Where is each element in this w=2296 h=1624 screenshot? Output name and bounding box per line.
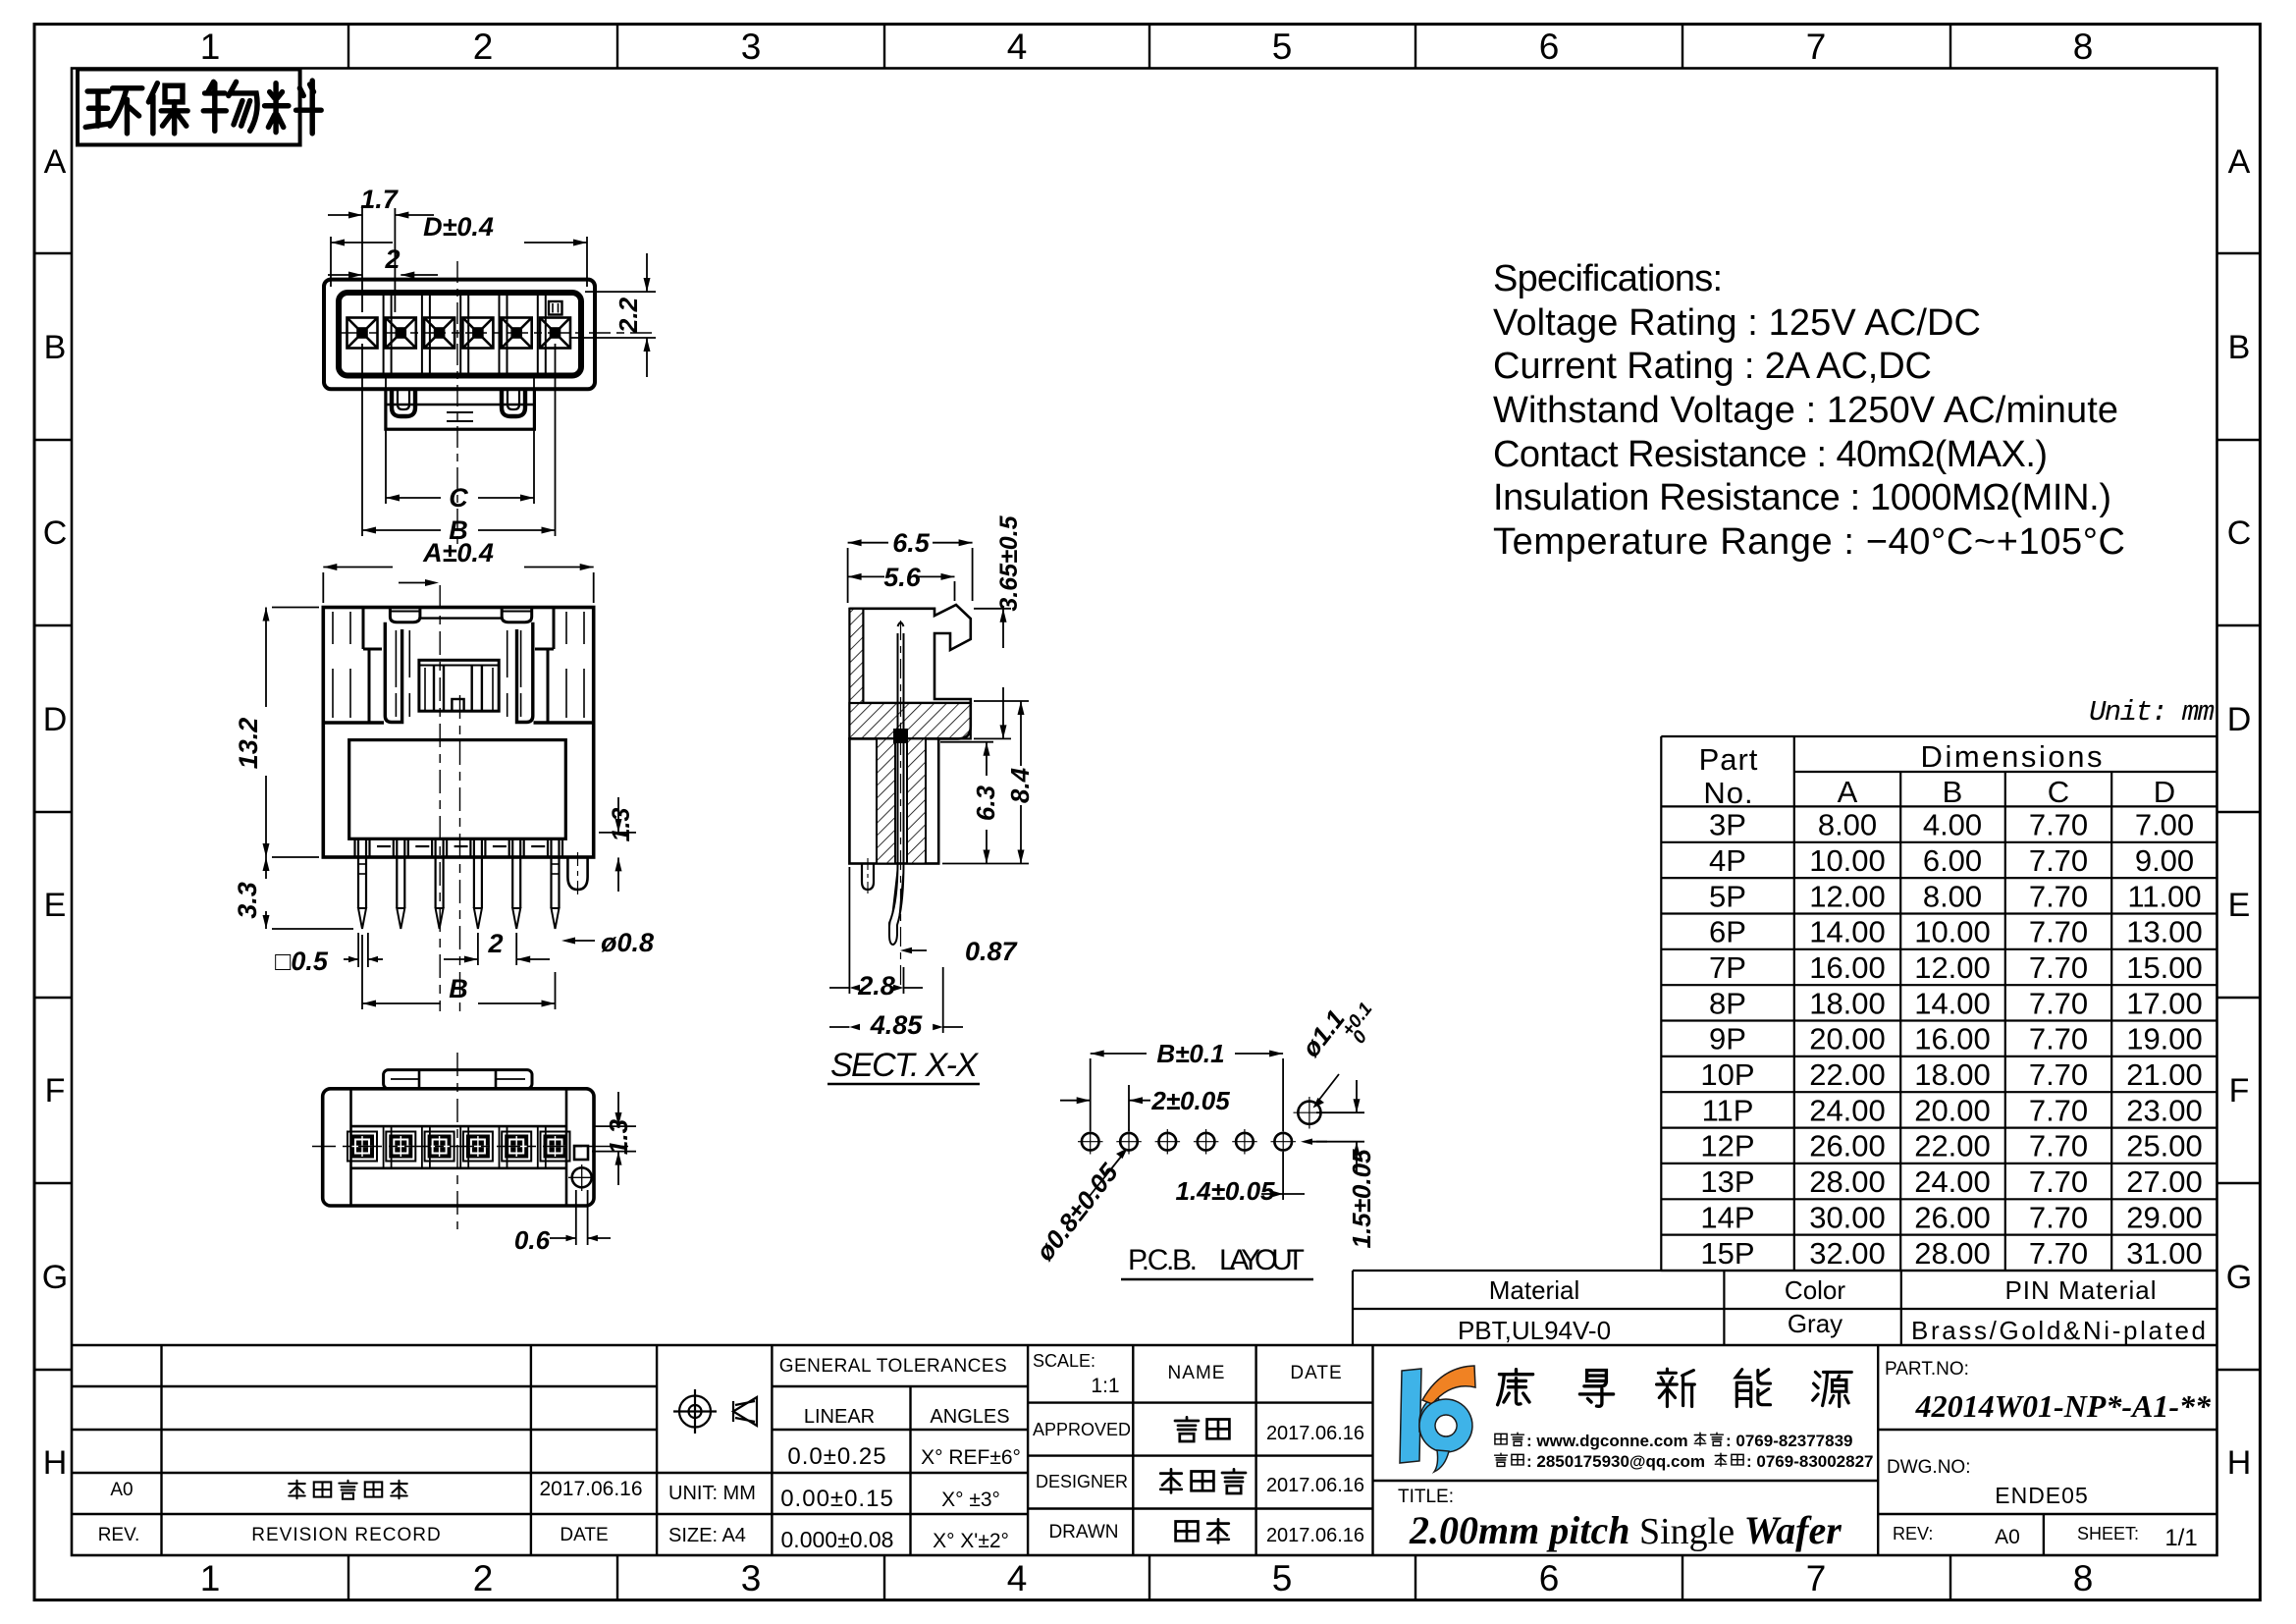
svg-text:B: B <box>1943 775 1963 809</box>
svg-text:26.00: 26.00 <box>1809 1129 1886 1164</box>
svg-text:1: 1 <box>200 1558 221 1598</box>
svg-text:15.00: 15.00 <box>2126 950 2203 985</box>
svg-text:4: 4 <box>1007 1558 1028 1598</box>
svg-text:1.3: 1.3 <box>608 808 635 842</box>
svg-text:Withstand Voltage : 1250V AC/m: Withstand Voltage : 1250V AC/minute <box>1493 390 2118 431</box>
svg-text:3.65±0.5: 3.65±0.5 <box>995 514 1023 611</box>
svg-text:No.: No. <box>1703 776 1753 810</box>
svg-text:LAYOUT: LAYOUT <box>1219 1244 1305 1276</box>
svg-text:TITLE:: TITLE: <box>1398 1487 1454 1507</box>
svg-text:LINEAR: LINEAR <box>804 1406 875 1428</box>
svg-text:20.00: 20.00 <box>1809 1022 1886 1056</box>
svg-text:6: 6 <box>1539 1558 1560 1598</box>
svg-text:4.85: 4.85 <box>870 1010 924 1040</box>
svg-text:28.00: 28.00 <box>1914 1236 1991 1271</box>
svg-text:2017.06.16: 2017.06.16 <box>1266 1475 1364 1496</box>
svg-text:1.7: 1.7 <box>360 185 400 214</box>
svg-text:7.70: 7.70 <box>2029 808 2088 842</box>
svg-text:E: E <box>44 887 67 924</box>
svg-text:8.4: 8.4 <box>1005 767 1035 803</box>
svg-text:Color: Color <box>1785 1275 1845 1305</box>
svg-text:7.70: 7.70 <box>2029 986 2088 1020</box>
svg-text:10.00: 10.00 <box>1809 843 1886 878</box>
svg-text:2: 2 <box>473 27 494 67</box>
svg-text:D: D <box>43 701 68 738</box>
svg-text:4.00: 4.00 <box>1923 808 1982 842</box>
svg-text:10.00: 10.00 <box>1914 915 1991 949</box>
svg-text:E: E <box>2228 887 2251 924</box>
svg-text:8P: 8P <box>1709 986 1746 1020</box>
svg-text:19.00: 19.00 <box>2126 1022 2203 1056</box>
svg-text:26.00: 26.00 <box>1914 1200 1991 1234</box>
svg-text:A0: A0 <box>1995 1526 2020 1548</box>
svg-text:16.00: 16.00 <box>1809 950 1886 985</box>
svg-text:29.00: 29.00 <box>2126 1200 2203 1234</box>
svg-text:3P: 3P <box>1709 808 1746 842</box>
svg-text:7.70: 7.70 <box>2029 1022 2088 1056</box>
svg-text:16.00: 16.00 <box>1914 1022 1991 1056</box>
svg-text:6.3: 6.3 <box>971 785 1000 821</box>
svg-text:Temperature Range : −40°C~+105: Temperature Range : −40°C~+105°C <box>1493 521 2125 563</box>
svg-text:DATE: DATE <box>560 1525 608 1545</box>
svg-text:P.C.B.: P.C.B. <box>1128 1244 1198 1276</box>
svg-text:REV.: REV. <box>98 1525 140 1545</box>
svg-text:□0.5: □0.5 <box>275 947 329 976</box>
svg-text:7.70: 7.70 <box>2029 950 2088 985</box>
svg-text:G: G <box>42 1259 68 1296</box>
svg-text:4: 4 <box>1007 27 1028 67</box>
svg-text:9P: 9P <box>1709 1022 1746 1056</box>
svg-text:18.00: 18.00 <box>1809 986 1886 1020</box>
svg-text:4P: 4P <box>1709 843 1746 878</box>
svg-text:1.5±0.05: 1.5±0.05 <box>1347 1149 1376 1249</box>
svg-text:42014W01-NP*-A1-**: 42014W01-NP*-A1-** <box>1915 1388 2212 1424</box>
svg-text:7.70: 7.70 <box>2029 1093 2088 1127</box>
svg-text:25.00: 25.00 <box>2126 1129 2203 1164</box>
svg-text:DESIGNER: DESIGNER <box>1036 1472 1128 1491</box>
svg-text:7: 7 <box>1806 27 1827 67</box>
svg-text:B: B <box>449 974 468 1003</box>
svg-text:20.00: 20.00 <box>1914 1093 1991 1127</box>
svg-text:7P: 7P <box>1709 950 1746 985</box>
svg-text:11P: 11P <box>1702 1093 1754 1127</box>
svg-text:5.6: 5.6 <box>883 563 922 592</box>
svg-text:PART.NO:: PART.NO: <box>1885 1359 1969 1380</box>
svg-text:D: D <box>2227 701 2252 738</box>
svg-text:: 0769-83002827: : 0769-83002827 <box>1746 1452 1874 1471</box>
svg-text:Voltage Rating : 125V AC/DC: Voltage Rating : 125V AC/DC <box>1493 302 1981 344</box>
svg-text:1:1: 1:1 <box>1091 1375 1119 1397</box>
svg-text:F: F <box>45 1072 66 1110</box>
svg-text:21.00: 21.00 <box>2126 1057 2203 1092</box>
svg-text:REV:: REV: <box>1893 1524 1933 1543</box>
svg-text:6.00: 6.00 <box>1923 843 1982 878</box>
svg-text:22.00: 22.00 <box>1914 1129 1991 1164</box>
svg-text:Specifications:: Specifications: <box>1493 258 1723 299</box>
svg-text:A0: A0 <box>110 1480 133 1500</box>
svg-text:NAME: NAME <box>1168 1363 1226 1383</box>
svg-text:1.3: 1.3 <box>604 1118 633 1155</box>
svg-text:7.70: 7.70 <box>2029 1057 2088 1092</box>
svg-text:12.00: 12.00 <box>1809 879 1886 913</box>
svg-text:2±0.05: 2±0.05 <box>1150 1086 1230 1115</box>
svg-text:DWG.NO:: DWG.NO: <box>1887 1457 1971 1478</box>
svg-text:UNIT: MM: UNIT: MM <box>668 1483 756 1504</box>
svg-text:8.00: 8.00 <box>1923 879 1982 913</box>
svg-text:7.70: 7.70 <box>2029 1236 2088 1271</box>
svg-text:C: C <box>2048 775 2069 809</box>
svg-text:A: A <box>44 143 67 181</box>
svg-text:D: D <box>2154 775 2175 809</box>
svg-text:7.70: 7.70 <box>2029 843 2088 878</box>
svg-text:12.00: 12.00 <box>1914 950 1991 985</box>
svg-text:X° REF±6°: X° REF±6° <box>921 1446 1021 1469</box>
svg-text:SIZE: A4: SIZE: A4 <box>668 1525 746 1546</box>
svg-text:3.3: 3.3 <box>233 882 262 919</box>
svg-text:13P: 13P <box>1700 1164 1754 1199</box>
svg-text:32.00: 32.00 <box>1809 1236 1886 1271</box>
svg-text:ENDE05: ENDE05 <box>1995 1483 2088 1508</box>
svg-text:7: 7 <box>1806 1558 1827 1598</box>
svg-text:14P: 14P <box>1700 1200 1754 1234</box>
svg-text:3: 3 <box>741 27 762 67</box>
svg-text:13.2: 13.2 <box>234 718 263 770</box>
svg-text:5: 5 <box>1272 27 1293 67</box>
svg-text:8: 8 <box>2073 1558 2094 1598</box>
svg-text:H: H <box>43 1444 68 1482</box>
svg-text:Brass/Gold&Ni-plated: Brass/Gold&Ni-plated <box>1911 1316 2206 1345</box>
svg-text:Unit: mm: Unit: mm <box>2089 696 2215 729</box>
svg-text:2017.06.16: 2017.06.16 <box>1266 1525 1364 1546</box>
svg-text:8: 8 <box>2073 27 2094 67</box>
svg-text:0.6: 0.6 <box>514 1225 551 1255</box>
svg-text:: www.dgconne.com: : www.dgconne.com <box>1526 1432 1688 1450</box>
svg-text:Insulation Resistance : 1000MΩ: Insulation Resistance : 1000MΩ(MIN.) <box>1493 477 2111 518</box>
svg-text:0.000±0.08: 0.000±0.08 <box>781 1527 894 1552</box>
svg-text:G: G <box>2226 1259 2252 1296</box>
svg-text:6: 6 <box>1539 27 1560 67</box>
svg-text:X° X'±2°: X° X'±2° <box>933 1530 1009 1552</box>
svg-text:9.00: 9.00 <box>2135 843 2194 878</box>
svg-text:24.00: 24.00 <box>1809 1093 1886 1127</box>
svg-text:B±0.1: B±0.1 <box>1156 1039 1224 1068</box>
svg-text:C: C <box>449 483 468 513</box>
svg-text:8.00: 8.00 <box>1818 808 1877 842</box>
svg-text:0.0±0.25: 0.0±0.25 <box>787 1443 886 1470</box>
svg-text:3: 3 <box>741 1558 762 1598</box>
svg-text:12P: 12P <box>1700 1129 1754 1164</box>
svg-text:Material: Material <box>1489 1275 1579 1305</box>
svg-text:A: A <box>2228 143 2251 181</box>
svg-text:B: B <box>2228 329 2251 366</box>
svg-text:30.00: 30.00 <box>1809 1200 1886 1234</box>
svg-text:A±0.4: A±0.4 <box>422 538 494 568</box>
svg-text:28.00: 28.00 <box>1809 1164 1886 1199</box>
svg-text:SECT. X-X: SECT. X-X <box>830 1047 979 1084</box>
svg-text:SHEET:: SHEET: <box>2077 1524 2139 1543</box>
svg-text:22.00: 22.00 <box>1809 1057 1886 1092</box>
svg-text:GENERAL TOLERANCES: GENERAL TOLERANCES <box>779 1356 1008 1377</box>
svg-text:31.00: 31.00 <box>2126 1236 2203 1271</box>
svg-text:PIN Material: PIN Material <box>2004 1275 2157 1305</box>
svg-text:Current Rating : 2A AC,DC: Current Rating : 2A AC,DC <box>1493 346 1932 387</box>
svg-text:23.00: 23.00 <box>2126 1093 2203 1127</box>
svg-text:Gray: Gray <box>1788 1309 1842 1338</box>
svg-text:27.00: 27.00 <box>2126 1164 2203 1199</box>
svg-text:1.4±0.05: 1.4±0.05 <box>1175 1176 1275 1206</box>
svg-text:2.2: 2.2 <box>614 297 643 334</box>
svg-text:2017.06.16: 2017.06.16 <box>539 1478 642 1500</box>
svg-text:15P: 15P <box>1700 1236 1754 1271</box>
svg-text:14.00: 14.00 <box>1809 915 1886 949</box>
svg-text:F: F <box>2229 1072 2250 1110</box>
svg-text:Dimensions: Dimensions <box>1921 739 2103 774</box>
svg-text:5: 5 <box>1272 1558 1293 1598</box>
svg-text:SCALE:: SCALE: <box>1033 1351 1095 1371</box>
svg-text:7.00: 7.00 <box>2135 808 2194 842</box>
svg-text:D±0.4: D±0.4 <box>423 212 494 242</box>
svg-text:DRAWN: DRAWN <box>1048 1522 1118 1543</box>
svg-text:0.87: 0.87 <box>965 937 1019 966</box>
svg-text:7.70: 7.70 <box>2029 879 2088 913</box>
svg-text:Part: Part <box>1699 742 1759 777</box>
svg-text:REVISION RECORD: REVISION RECORD <box>251 1525 441 1545</box>
svg-text:7.70: 7.70 <box>2029 1164 2088 1199</box>
svg-text:2: 2 <box>384 244 400 274</box>
svg-text:: 0769-82377839: : 0769-82377839 <box>1726 1432 1853 1450</box>
svg-text:DATE: DATE <box>1290 1363 1342 1383</box>
svg-text:6P: 6P <box>1709 915 1746 949</box>
svg-text:APPROVED: APPROVED <box>1033 1420 1131 1439</box>
svg-text:: 2850175930@qq.com: : 2850175930@qq.com <box>1526 1452 1705 1471</box>
svg-text:2: 2 <box>487 929 503 958</box>
svg-text:2.8: 2.8 <box>857 971 895 1001</box>
svg-text:2: 2 <box>473 1558 494 1598</box>
svg-text:X° ±3°: X° ±3° <box>941 1489 1000 1511</box>
svg-text:18.00: 18.00 <box>1914 1057 1991 1092</box>
svg-text:17.00: 17.00 <box>2126 986 2203 1020</box>
svg-text:11.00: 11.00 <box>2127 879 2201 913</box>
svg-text:A: A <box>1838 775 1858 809</box>
svg-text:ø0.8: ø0.8 <box>601 928 654 957</box>
svg-text:0.00±0.15: 0.00±0.15 <box>780 1486 894 1512</box>
svg-text:7.70: 7.70 <box>2029 1129 2088 1164</box>
svg-text:ANGLES: ANGLES <box>930 1406 1009 1428</box>
svg-text:B: B <box>44 329 67 366</box>
svg-text:2.00mm pitch Single Wafer: 2.00mm pitch Single Wafer <box>1409 1508 1842 1552</box>
svg-text:13.00: 13.00 <box>2126 915 2203 949</box>
svg-text:14.00: 14.00 <box>1914 986 1991 1020</box>
svg-text:2017.06.16: 2017.06.16 <box>1266 1423 1364 1444</box>
svg-text:1/1: 1/1 <box>2164 1525 2197 1551</box>
svg-text:C: C <box>2227 514 2252 552</box>
svg-text:5P: 5P <box>1709 879 1746 913</box>
svg-text:24.00: 24.00 <box>1914 1164 1991 1199</box>
svg-text:7.70: 7.70 <box>2029 915 2088 949</box>
svg-text:Contact Resistance : 40mΩ(MAX.: Contact Resistance : 40mΩ(MAX.) <box>1493 434 2048 475</box>
svg-text:6.5: 6.5 <box>892 528 931 558</box>
svg-text:1: 1 <box>200 27 221 67</box>
svg-text:PBT,UL94V-0: PBT,UL94V-0 <box>1458 1316 1611 1345</box>
svg-text:H: H <box>2227 1444 2252 1482</box>
svg-text:10P: 10P <box>1700 1057 1754 1092</box>
svg-text:C: C <box>43 514 68 552</box>
svg-text:7.70: 7.70 <box>2029 1200 2088 1234</box>
